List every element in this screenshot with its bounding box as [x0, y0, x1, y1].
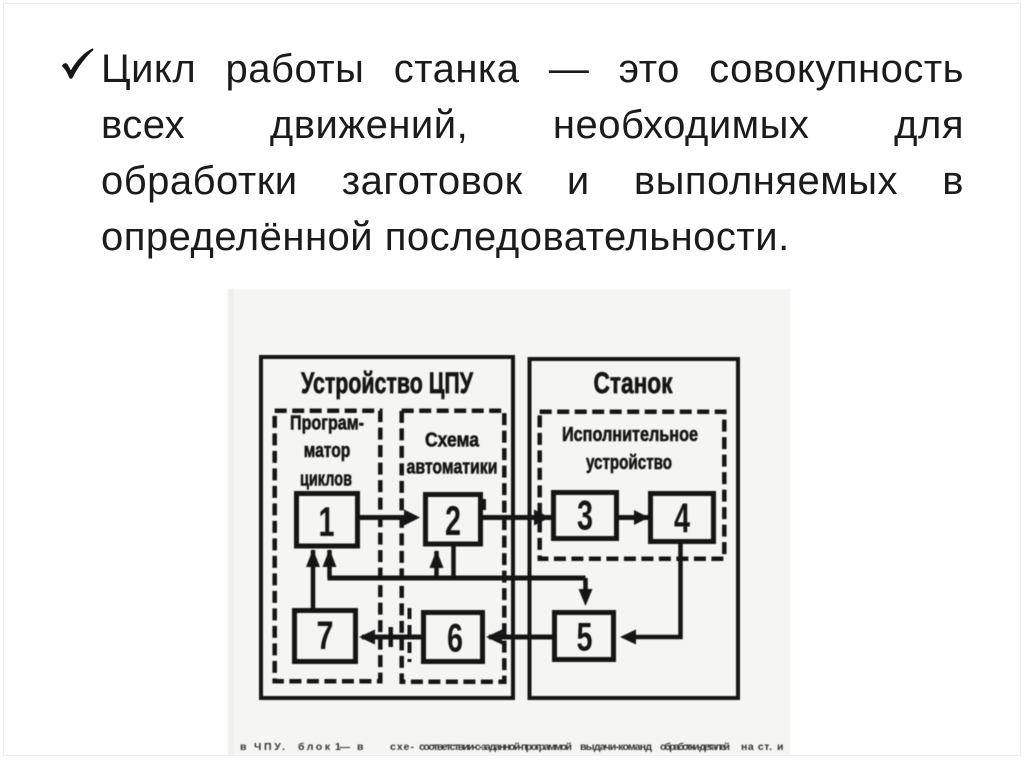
svg-text:в: в: [240, 741, 247, 753]
svg-text:2: 2: [445, 497, 461, 544]
svg-text:в: в: [357, 741, 364, 753]
svg-text:Схема: Схема: [425, 430, 480, 452]
svg-text:автоматики: автоматики: [407, 457, 498, 479]
svg-text:6: 6: [447, 617, 463, 661]
svg-text:1—: 1—: [335, 741, 351, 753]
svg-text:Исполнительное: Исполнительное: [562, 424, 698, 446]
svg-text:5: 5: [577, 616, 593, 660]
svg-text:3: 3: [577, 492, 593, 539]
svg-text:соответствии-с-заданной-програ: соответствии-с-заданной-программой: [419, 741, 572, 753]
svg-text:Устройство ЦПУ: Устройство ЦПУ: [301, 367, 473, 400]
svg-text:обработки-деталей: обработки-деталей: [660, 741, 730, 753]
svg-text:на ст.: на ст.: [741, 741, 772, 753]
svg-text:7: 7: [317, 614, 334, 658]
svg-text:схе-: схе-: [390, 741, 415, 753]
svg-text:Програм-: Програм-: [290, 413, 364, 435]
svg-text:Станок: Станок: [594, 367, 674, 400]
svg-text:матор: матор: [304, 440, 351, 462]
svg-text:циклов: циклов: [300, 469, 352, 491]
svg-text:выдачи-команд: выдачи-команд: [580, 741, 652, 753]
svg-text:1: 1: [319, 498, 335, 545]
svg-text:4: 4: [674, 495, 690, 542]
svg-text:устройство: устройство: [586, 452, 672, 474]
svg-text:и: и: [777, 741, 783, 753]
